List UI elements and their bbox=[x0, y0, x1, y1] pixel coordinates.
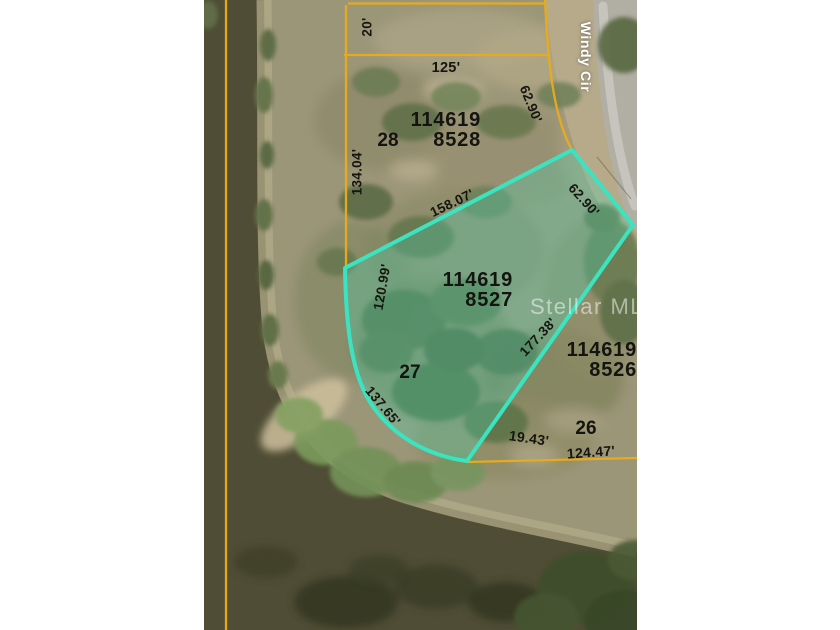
dimension-label-20ft: 20' bbox=[360, 17, 375, 36]
parcel-id-8526: 114619 8526 bbox=[545, 340, 637, 380]
dimension-label-125ft: 125' bbox=[432, 60, 461, 76]
parcel-id-8527-top: 114619 bbox=[423, 270, 513, 290]
parcel-id-8527: 114619 8527 bbox=[423, 270, 513, 310]
dimension-label-124-47ft: 124.47' bbox=[566, 442, 615, 461]
street-label-windy-cir: Windy Cir bbox=[578, 22, 594, 93]
lot-number-27: 27 bbox=[399, 362, 420, 384]
lot-number-26: 26 bbox=[575, 418, 596, 440]
watermark-stellar-mls: Stellar MLS bbox=[530, 294, 637, 320]
parcel-id-8528: 114619 8528 bbox=[391, 110, 481, 150]
parcel-id-8527-bottom: 8527 bbox=[423, 290, 513, 310]
parcel-id-8528-bottom: 8528 bbox=[391, 130, 481, 150]
lot-number-28: 28 bbox=[377, 130, 398, 152]
screenshot-root: 20' 125' 62.90' 134.04' 158.07' 62.90' 1… bbox=[0, 0, 840, 630]
parcel-id-8526-bottom: 8526 bbox=[545, 360, 637, 380]
dimension-label-134-04ft: 134.04' bbox=[350, 149, 365, 196]
aerial-photo: 20' 125' 62.90' 134.04' 158.07' 62.90' 1… bbox=[204, 0, 637, 630]
parcel-id-8528-top: 114619 bbox=[391, 110, 481, 130]
parcel-id-8526-top: 114619 bbox=[545, 340, 637, 360]
